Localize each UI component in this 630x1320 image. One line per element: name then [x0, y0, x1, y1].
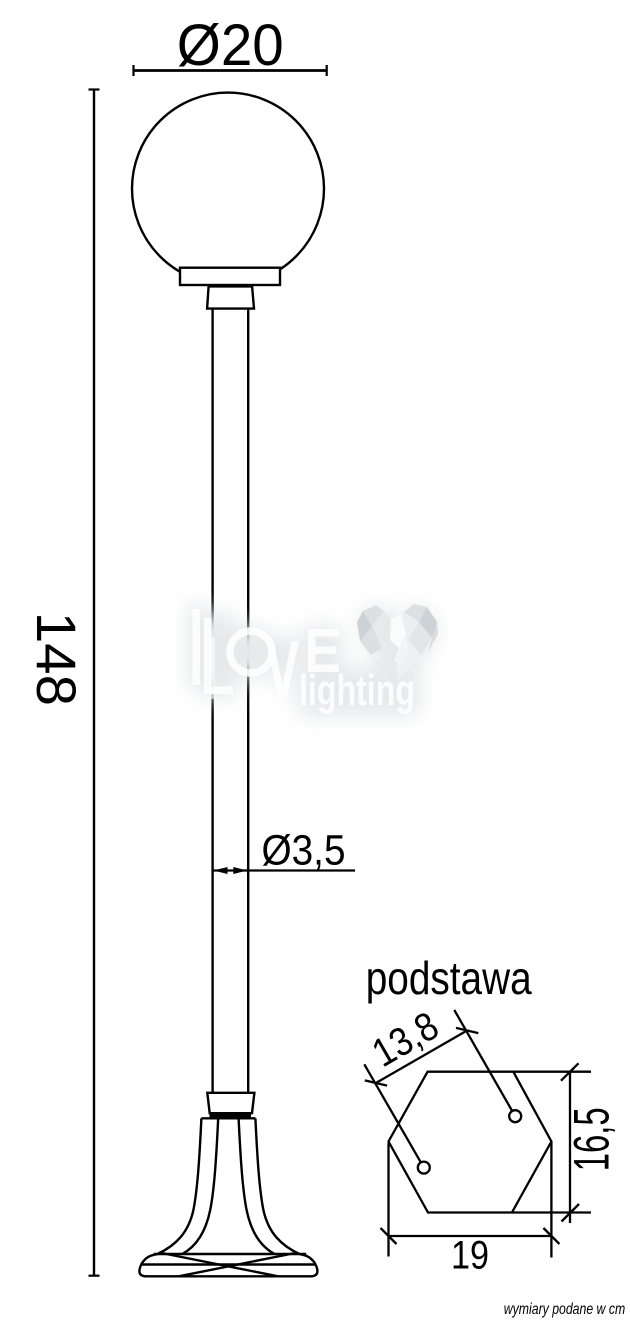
- svg-text:148: 148: [25, 612, 88, 706]
- svg-text:Ø20: Ø20: [177, 13, 284, 78]
- svg-text:wymiary podane w cm: wymiary podane w cm: [504, 1301, 625, 1318]
- svg-text:16,5: 16,5: [562, 1107, 619, 1171]
- svg-text:podstawa: podstawa: [366, 952, 532, 1004]
- svg-text:19: 19: [451, 1233, 489, 1277]
- svg-text:Ø3,5: Ø3,5: [262, 826, 346, 874]
